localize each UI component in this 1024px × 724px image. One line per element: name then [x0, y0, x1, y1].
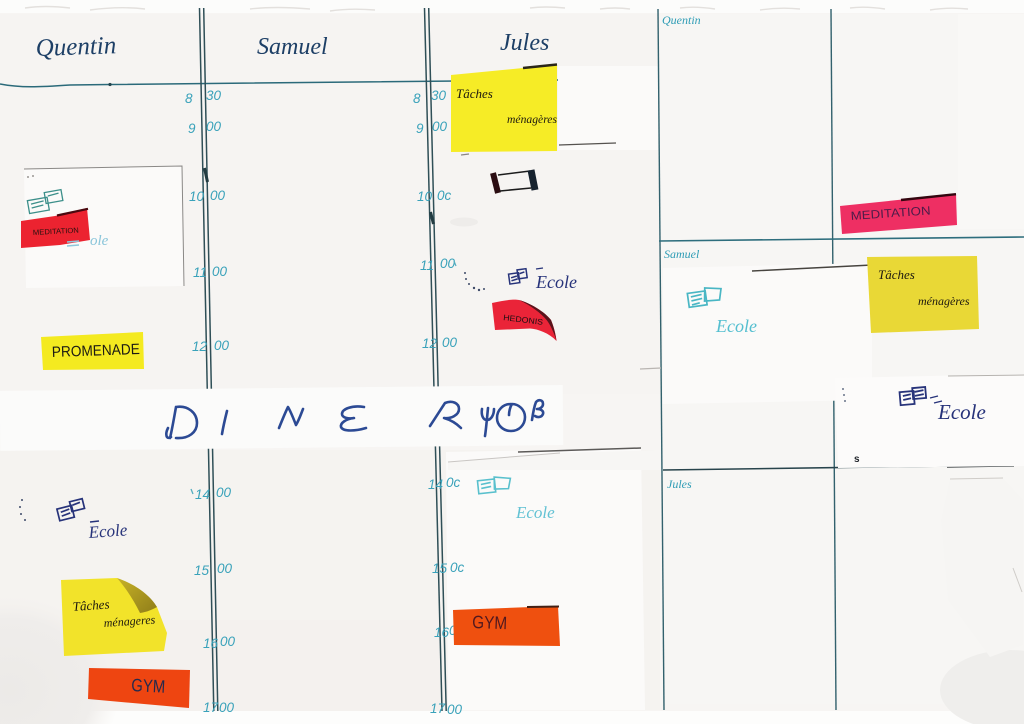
- svg-text:PROMENADE: PROMENADE: [52, 341, 141, 361]
- svg-text:00: 00: [219, 700, 235, 715]
- svg-text:14: 14: [195, 487, 210, 502]
- svg-text:Ecole: Ecole: [715, 316, 757, 336]
- svg-text:s: s: [854, 454, 860, 465]
- svg-text:GYM: GYM: [131, 675, 166, 697]
- svg-text:9: 9: [188, 121, 196, 136]
- svg-text:8: 8: [413, 91, 421, 106]
- svg-text:00: 00: [442, 335, 458, 350]
- svg-text:ménagères: ménagères: [507, 112, 557, 126]
- svg-text:0c: 0c: [446, 475, 461, 490]
- svg-text:Ecole: Ecole: [515, 503, 555, 522]
- svg-text:10: 10: [417, 189, 433, 204]
- svg-text:Samuel: Samuel: [257, 34, 328, 60]
- svg-text:Quentin: Quentin: [662, 13, 701, 27]
- svg-text:Ecole: Ecole: [535, 272, 577, 292]
- svg-text:Ecole: Ecole: [937, 400, 986, 424]
- svg-text:00: 00: [206, 119, 222, 134]
- svg-text:ole: ole: [90, 233, 109, 249]
- svg-text:17: 17: [430, 701, 446, 716]
- svg-text:00: 00: [216, 485, 232, 500]
- svg-text:Jules: Jules: [667, 477, 692, 491]
- svg-text:Tâches: Tâches: [878, 267, 915, 282]
- svg-text:00: 00: [220, 634, 236, 649]
- svg-text:15: 15: [194, 563, 210, 578]
- svg-text:30: 30: [206, 88, 222, 103]
- svg-text:Ecole: Ecole: [87, 520, 128, 542]
- svg-text:17: 17: [203, 700, 219, 715]
- svg-text:ménagères: ménagères: [918, 294, 970, 308]
- svg-text:8: 8: [185, 91, 193, 106]
- svg-text:00: 00: [447, 702, 463, 717]
- svg-text:Quentin: Quentin: [35, 32, 116, 62]
- svg-text:15: 15: [432, 561, 448, 576]
- svg-text:00: 00: [440, 256, 456, 271]
- svg-text:0c: 0c: [450, 560, 465, 575]
- svg-text:11: 11: [193, 265, 207, 280]
- svg-text:00: 00: [210, 188, 226, 203]
- svg-text:Tâches: Tâches: [72, 596, 110, 614]
- svg-text:11: 11: [420, 258, 434, 273]
- svg-text:12: 12: [422, 336, 438, 351]
- svg-text:00: 00: [432, 119, 448, 134]
- svg-text:Jules: Jules: [500, 30, 549, 56]
- svg-text:14: 14: [428, 477, 443, 492]
- svg-text:00: 00: [212, 264, 228, 279]
- svg-text:00: 00: [217, 561, 233, 576]
- svg-text:12: 12: [192, 339, 208, 354]
- svg-text:9: 9: [416, 121, 424, 136]
- svg-text:Tâches: Tâches: [456, 86, 493, 101]
- svg-text:GYM: GYM: [472, 612, 508, 633]
- svg-text:16: 16: [434, 625, 450, 640]
- svg-text:16: 16: [203, 636, 219, 651]
- svg-text:30: 30: [431, 88, 447, 103]
- svg-text:0c: 0c: [437, 188, 452, 203]
- svg-text:Samuel: Samuel: [664, 247, 700, 261]
- svg-text:00: 00: [214, 338, 230, 353]
- svg-text:10: 10: [189, 189, 205, 204]
